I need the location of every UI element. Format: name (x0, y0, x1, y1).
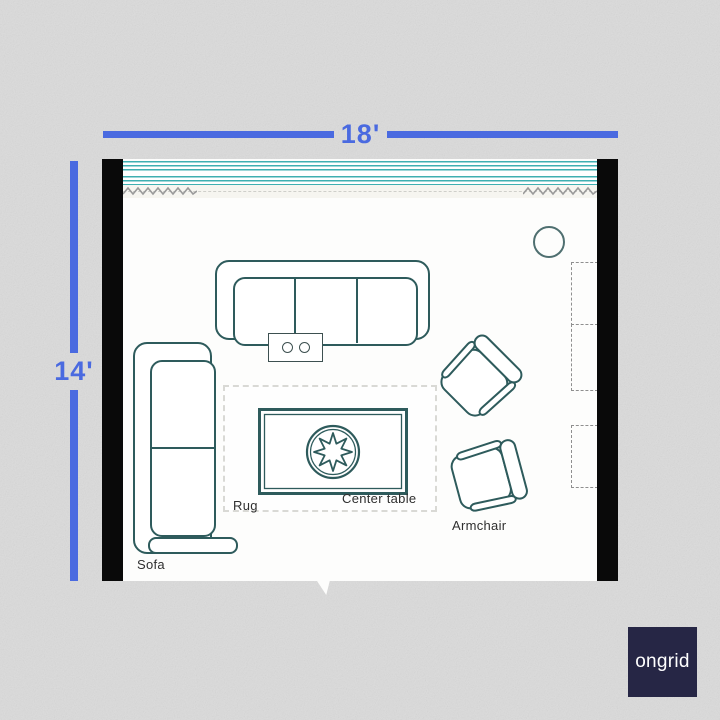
dimension-line-bottom-segment (70, 390, 78, 582)
three-seat-sofa (215, 260, 431, 352)
sofa-cushions (233, 277, 418, 346)
dimension-line-left-segment (103, 131, 334, 138)
ongrid-logo-text: ongrid (635, 651, 690, 673)
wall-shelf-outline-1 (571, 262, 598, 326)
sofa-label: Sofa (137, 557, 165, 572)
console-circle (299, 342, 310, 353)
rug-label: Rug (233, 498, 258, 513)
width-dimension-label: 18' (341, 121, 380, 148)
dimension-line-horizontal: 18' (103, 125, 618, 143)
sofa-armrest (148, 537, 238, 554)
cushion-divider (152, 447, 214, 449)
wall-left (102, 159, 123, 581)
floorplan-canvas: 18' 14' (0, 0, 720, 720)
height-dimension-label: 14' (54, 358, 93, 385)
zigzag-left (123, 186, 197, 196)
center-table-label: Center table (342, 491, 416, 506)
window-band (123, 161, 597, 185)
console-circle (282, 342, 293, 353)
armchair-label: Armchair (452, 518, 506, 533)
dimension-line-right-segment (387, 131, 618, 138)
round-side-table (533, 226, 565, 258)
ongrid-logo: ongrid (628, 627, 697, 697)
dimension-line-vertical: 14' (54, 161, 94, 581)
dimension-line-top-segment (70, 161, 78, 353)
wall-shelf-outline-2 (571, 324, 598, 391)
wall-shelf-outline-3 (571, 425, 598, 488)
two-seat-sofa (133, 342, 239, 557)
cushion-divider (356, 279, 358, 343)
center-table (258, 408, 408, 495)
sofa-console-table (268, 333, 323, 362)
wall-right (597, 159, 618, 581)
zigzag-right (523, 186, 597, 196)
